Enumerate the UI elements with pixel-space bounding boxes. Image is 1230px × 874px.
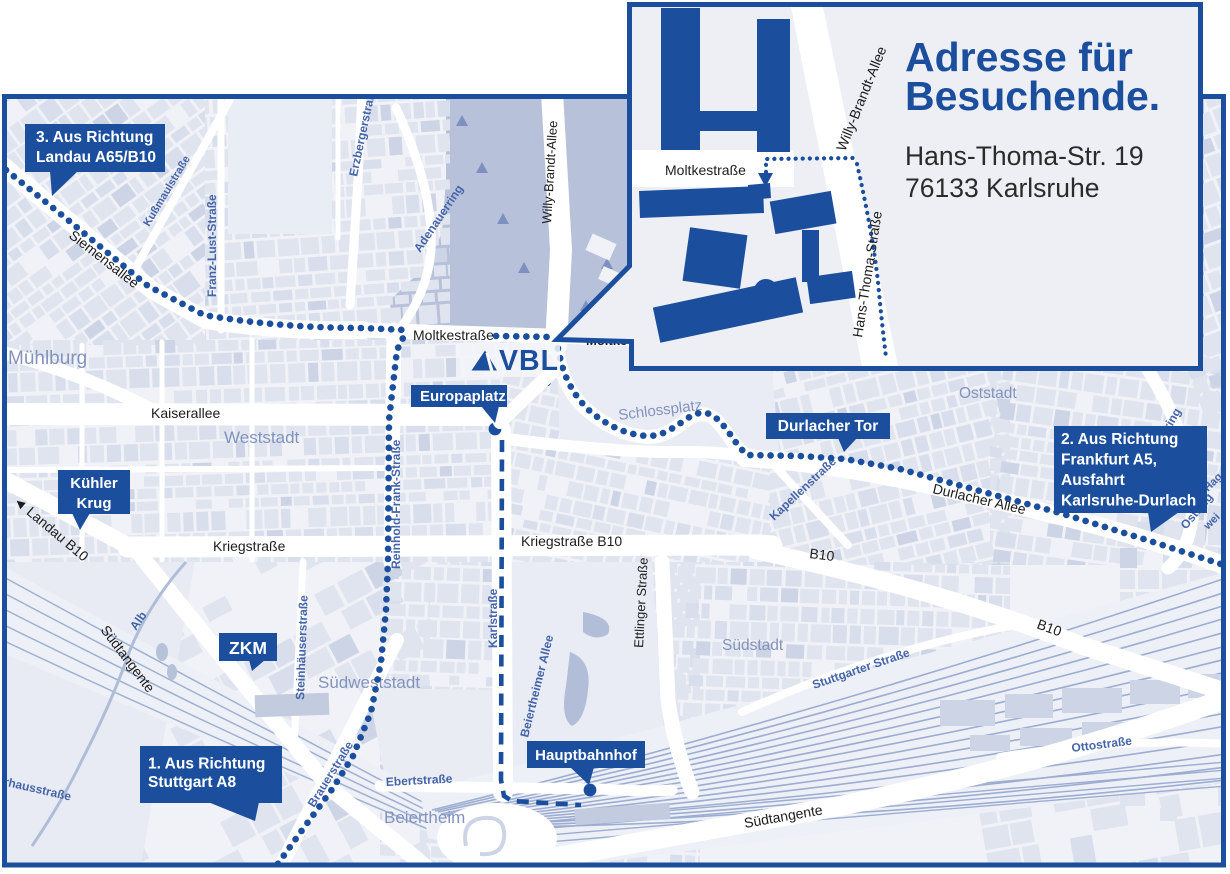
svg-text:Kühler: Kühler [70,475,118,492]
svg-text:Karlstraße: Karlstraße [486,588,500,648]
svg-text:76133 Karlsruhe: 76133 Karlsruhe [905,173,1099,203]
svg-text:Durlacher Tor: Durlacher Tor [778,418,879,435]
svg-text:Moltkestraße: Moltkestraße [665,162,746,178]
svg-text:Krug: Krug [77,495,112,512]
svg-text:Europaplatz: Europaplatz [420,388,506,405]
svg-text:VBL: VBL [499,345,559,377]
svg-text:2. Aus Richtung: 2. Aus Richtung [1061,431,1178,448]
svg-text:Landau A65/B10: Landau A65/B10 [36,149,156,166]
svg-text:Südstadt: Südstadt [722,637,784,654]
svg-text:Hauptbahnhof: Hauptbahnhof [535,747,638,764]
svg-text:Karlsruhe-Durlach: Karlsruhe-Durlach [1061,493,1196,510]
svg-text:B10: B10 [809,545,836,564]
svg-text:Frankfurt A5,: Frankfurt A5, [1061,452,1157,469]
svg-text:Beiertheim: Beiertheim [384,808,465,827]
svg-text:Oststadt: Oststadt [959,385,1017,402]
svg-text:Kriegstraße: Kriegstraße [213,538,286,554]
svg-text:Moltkestraße: Moltkestraße [413,327,494,343]
svg-text:Besuchende.: Besuchende. [905,73,1160,119]
svg-text:Weststadt: Weststadt [224,428,300,447]
svg-text:Kaiserallee: Kaiserallee [151,405,220,421]
svg-text:Franz-Lust-Straße: Franz-Lust-Straße [205,194,219,297]
svg-text:Stuttgart A8: Stuttgart A8 [148,774,236,791]
svg-text:3. Aus Richtung: 3. Aus Richtung [36,129,153,146]
svg-text:1. Aus Richtung: 1. Aus Richtung [148,756,265,773]
svg-text:ZKM: ZKM [229,638,267,658]
svg-text:Ausfahrt: Ausfahrt [1061,472,1125,489]
svg-text:Südweststadt: Südweststadt [318,673,420,692]
svg-text:Kriegstraße B10: Kriegstraße B10 [521,533,622,549]
svg-text:Mühlburg: Mühlburg [8,348,87,369]
svg-text:Hans-Thoma-Str. 19: Hans-Thoma-Str. 19 [905,141,1144,171]
